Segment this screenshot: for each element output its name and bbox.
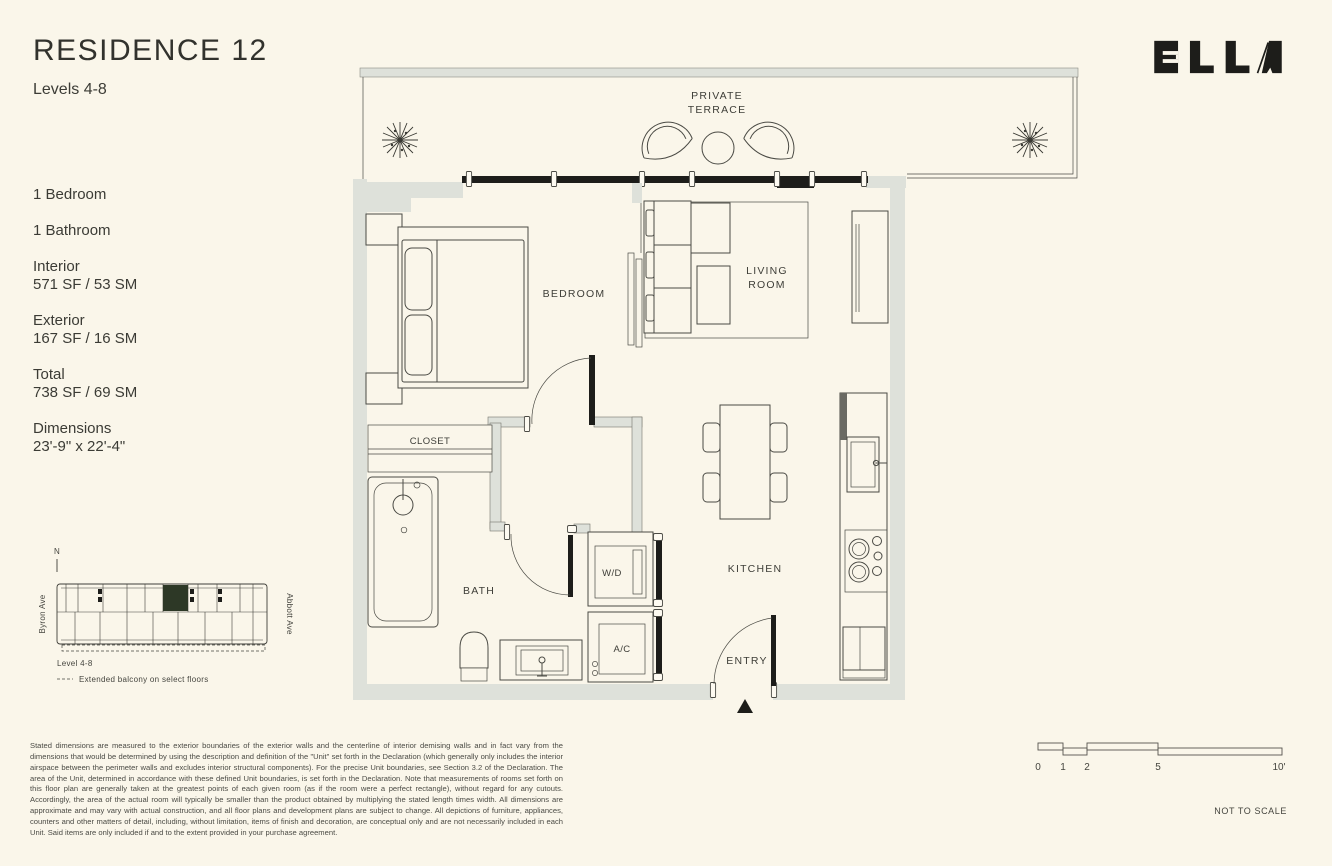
scale-tick-0: 0 — [1035, 762, 1041, 773]
fact-total-label: Total — [33, 366, 137, 384]
fact-total: Total 738 SF / 69 SM — [33, 366, 137, 402]
plant-icon — [382, 122, 418, 158]
north-indicator: N — [54, 547, 60, 556]
keyplan-level-label: Level 4-8 — [57, 659, 93, 668]
pillow — [405, 248, 432, 310]
kitchen-counter — [840, 393, 887, 680]
scale-tick-1: 1 — [1060, 762, 1066, 773]
levels-subtitle: Levels 4-8 — [33, 81, 333, 99]
dining-chair — [770, 473, 787, 502]
toilet — [460, 632, 488, 681]
kitchen-label: KITCHEN — [728, 563, 783, 575]
fact-dimensions-value: 23'-9" x 22'-4" — [33, 438, 125, 456]
ac-closet: A/C — [588, 610, 663, 683]
bedroom-label: BEDROOM — [543, 288, 606, 300]
plant-icon — [1012, 122, 1048, 158]
dining-chair — [770, 423, 787, 452]
fact-interior-value: 571 SF / 53 SM — [33, 276, 137, 294]
fact-dimensions: Dimensions 23'-9" x 22'-4" — [33, 420, 125, 456]
entry-label: ENTRY — [726, 655, 767, 667]
terrace-chair — [741, 114, 802, 165]
sliding-door-panel — [628, 253, 634, 345]
washer-dryer-label: W/D — [602, 568, 622, 579]
not-to-scale-note: NOT TO SCALE — [1150, 806, 1287, 816]
disclaimer-text: Stated dimensions are measured to the ex… — [30, 741, 563, 839]
fact-bathrooms-label: 1 Bathroom — [33, 222, 111, 239]
private-terrace: PRIVATE TERRACE — [360, 68, 1078, 179]
nightstand — [366, 214, 402, 245]
unit-info-panel: RESIDENCE 12 Levels 4-8 — [33, 34, 333, 99]
fact-exterior: Exterior 167 SF / 16 SM — [33, 312, 137, 348]
scale-tick-10: 10' — [1272, 762, 1285, 773]
street-label-left: Byron Ave — [38, 594, 47, 633]
terrace-label-1: PRIVATE — [691, 90, 743, 102]
floorplan-sheet: RESIDENCE 12 Levels 4-8 1 Bedroom 1 Bath… — [0, 0, 1332, 866]
fact-bedrooms-label: 1 Bedroom — [33, 186, 106, 203]
bedroom: BEDROOM — [366, 214, 642, 432]
terrace-label-2: TERRACE — [688, 104, 747, 116]
highlighted-unit — [163, 585, 188, 611]
coffee-table — [697, 266, 730, 324]
page-title: RESIDENCE 12 — [33, 34, 333, 68]
keyplan-legend: Extended balcony on select floors — [57, 675, 209, 684]
kitchen: KITCHEN — [703, 393, 887, 680]
key-plan: N Byron Ave Abbott Ave Level 4-8 Extende… — [25, 538, 315, 690]
logo-letter-l1 — [1190, 41, 1214, 73]
closet: CLOSET — [368, 425, 492, 472]
ella-logo — [1147, 40, 1289, 74]
living-room-label-1: LIVING — [746, 265, 788, 277]
logo-letter-a — [1258, 41, 1282, 73]
fact-dimensions-label: Dimensions — [33, 420, 125, 438]
dining-chair — [703, 423, 720, 452]
pillow — [405, 315, 432, 375]
fact-interior-label: Interior — [33, 258, 137, 276]
nightstand — [366, 373, 402, 404]
bath-door — [504, 525, 576, 598]
tv-console — [852, 211, 888, 323]
bathtub — [368, 477, 438, 627]
sliding-door-panel — [636, 259, 642, 347]
fact-total-value: 738 SF / 69 SM — [33, 384, 137, 402]
fact-exterior-label: Exterior — [33, 312, 137, 330]
terrace-chair — [634, 114, 695, 165]
ac-label: A/C — [613, 644, 630, 655]
bathroom: BATH — [368, 477, 582, 681]
bed — [398, 227, 528, 388]
scale-tick-5: 5 — [1155, 762, 1161, 773]
keyplan-legend-text: Extended balcony on select floors — [79, 675, 209, 684]
logo-letter-e — [1154, 41, 1178, 73]
fact-bedrooms: 1 Bedroom — [33, 186, 106, 204]
closet-label: CLOSET — [410, 436, 450, 447]
vanity-sink — [500, 640, 582, 680]
scale-bar: 0 1 2 5 10' — [1030, 738, 1290, 778]
living-room-label-2: ROOM — [748, 279, 785, 291]
dining-chair — [703, 473, 720, 502]
fact-bathrooms: 1 Bathroom — [33, 222, 111, 240]
fact-exterior-value: 167 SF / 16 SM — [33, 330, 137, 348]
bath-label: BATH — [463, 585, 495, 597]
scale-tick-2: 2 — [1084, 762, 1090, 773]
fact-interior: Interior 571 SF / 53 SM — [33, 258, 137, 294]
entry-arrow-icon — [737, 699, 753, 713]
extended-balcony-outline — [62, 645, 265, 651]
street-label-right: Abbott Ave — [285, 593, 294, 635]
entry: ENTRY — [710, 615, 776, 713]
terrace-table — [702, 132, 734, 164]
floor-plan: PRIVATE TERRACE — [340, 60, 1100, 720]
laundry-closet: W/D — [588, 532, 663, 607]
building-outline — [57, 584, 267, 651]
logo-letter-l2 — [1226, 41, 1250, 73]
living-room: LIVING ROOM — [644, 201, 888, 338]
bedroom-door — [524, 355, 595, 432]
dining-table — [703, 405, 787, 519]
